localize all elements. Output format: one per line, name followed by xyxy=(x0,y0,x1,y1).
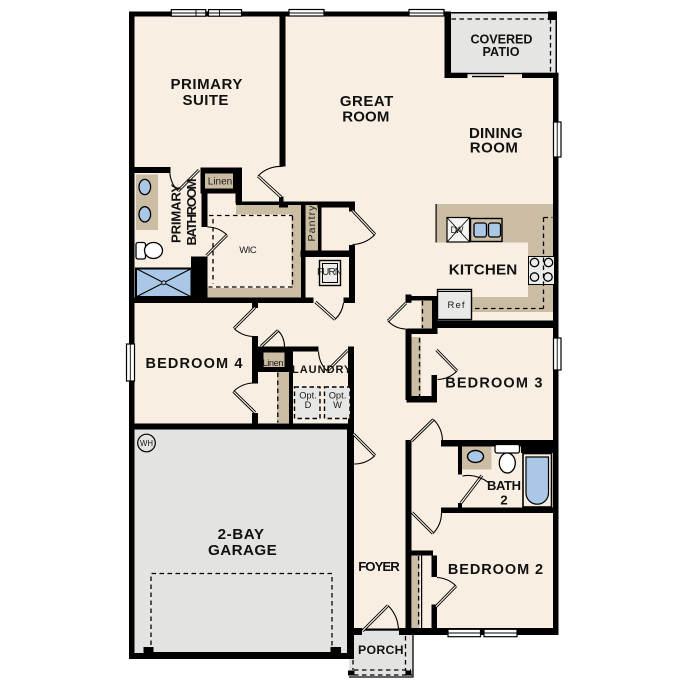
svg-text:Opt.: Opt. xyxy=(329,390,347,400)
svg-text:BEDROOM 4: BEDROOM 4 xyxy=(146,356,243,372)
svg-text:Opt.: Opt. xyxy=(299,390,317,400)
svg-text:DW: DW xyxy=(451,225,465,235)
svg-text:Linen: Linen xyxy=(208,177,232,188)
svg-text:WIC: WIC xyxy=(239,245,257,256)
svg-text:FOYER: FOYER xyxy=(358,559,400,574)
svg-text:W: W xyxy=(333,400,342,410)
svg-text:PORCH: PORCH xyxy=(358,643,404,657)
svg-text:GREAT: GREAT xyxy=(340,93,394,110)
svg-text:WH: WH xyxy=(140,439,153,448)
svg-text:PRIMARY: PRIMARY xyxy=(170,76,242,93)
svg-text:FURN: FURN xyxy=(317,267,342,278)
svg-text:2-BAY: 2-BAY xyxy=(218,526,264,543)
svg-text:SUITE: SUITE xyxy=(183,92,229,109)
svg-text:D: D xyxy=(305,400,312,410)
svg-text:KITCHEN: KITCHEN xyxy=(449,261,518,278)
svg-text:ROOM: ROOM xyxy=(342,109,389,126)
svg-text:PRIMARY: PRIMARY xyxy=(169,184,184,243)
svg-text:Pantry: Pantry xyxy=(306,205,318,242)
svg-text:BATH: BATH xyxy=(487,478,521,493)
svg-text:PATIO: PATIO xyxy=(483,45,520,59)
svg-text:Linen: Linen xyxy=(263,358,284,368)
svg-text:BEDROOM 3: BEDROOM 3 xyxy=(445,375,542,391)
svg-text:GARAGE: GARAGE xyxy=(208,542,277,559)
svg-text:2: 2 xyxy=(500,492,507,507)
svg-text:ROOM: ROOM xyxy=(470,140,518,157)
svg-text:BATHROOM: BATHROOM xyxy=(184,179,199,246)
svg-text:LAUNDRY: LAUNDRY xyxy=(292,364,352,376)
svg-text:Ref: Ref xyxy=(448,300,465,311)
svg-text:BEDROOM 2: BEDROOM 2 xyxy=(448,562,543,578)
